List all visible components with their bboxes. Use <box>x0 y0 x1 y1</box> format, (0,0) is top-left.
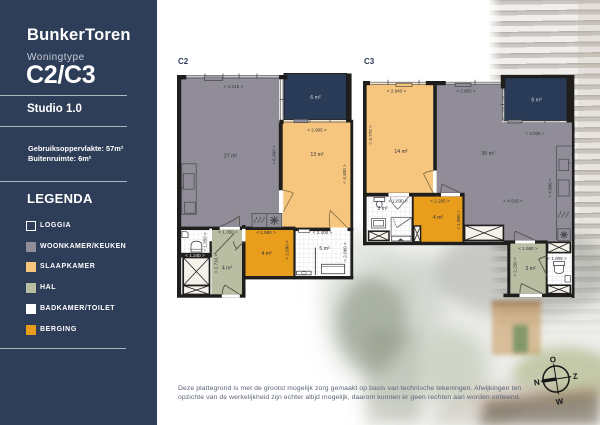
svg-text:< 1.240 >: < 1.240 > <box>185 253 205 258</box>
svg-text:6 m²: 6 m² <box>531 98 542 104</box>
svg-text:O: O <box>549 355 557 365</box>
svg-text:30 m²: 30 m² <box>481 151 495 157</box>
svg-text:< 2.965 >: < 2.965 > <box>307 128 327 133</box>
svg-text:C2: C2 <box>178 57 189 66</box>
svg-text:6 m²: 6 m² <box>310 95 321 101</box>
svg-text:27 m²: 27 m² <box>224 154 238 160</box>
svg-text:< 4.515 >: < 4.515 > <box>503 198 523 203</box>
svg-text:< 2.090 >: < 2.090 > <box>285 240 290 260</box>
svg-text:Z: Z <box>572 372 578 382</box>
svg-text:3 m²: 3 m² <box>525 266 536 272</box>
svg-text:14 m²: 14 m² <box>394 149 408 155</box>
svg-text:4 m²: 4 m² <box>261 251 272 257</box>
svg-text:< 4.400 >: < 4.400 > <box>342 164 347 184</box>
svg-text:< 3.035 >: < 3.035 > <box>525 131 545 136</box>
svg-text:N: N <box>533 378 540 388</box>
svg-text:< 2.710 >: < 2.710 > <box>213 253 218 273</box>
svg-text:5 m²: 5 m² <box>319 246 330 252</box>
svg-text:< 2.250 >: < 2.250 > <box>513 257 518 277</box>
svg-text:W: W <box>555 397 564 407</box>
svg-text:4 m²: 4 m² <box>433 215 444 221</box>
svg-text:< 6.460 >: < 6.460 > <box>272 145 277 165</box>
svg-text:4 m²: 4 m² <box>222 266 233 272</box>
svg-text:< 1.005 >: < 1.005 > <box>547 256 567 261</box>
svg-text:< 4.770 >: < 4.770 > <box>368 125 373 145</box>
svg-text:< 2.805 >: < 2.805 > <box>456 88 476 93</box>
svg-text:< 1.800 >: < 1.800 > <box>456 210 461 230</box>
svg-text:C3: C3 <box>364 57 375 66</box>
svg-text:< 1.990 >: < 1.990 > <box>256 230 276 235</box>
svg-text:< 1.830 >: < 1.830 > <box>388 198 408 203</box>
svg-text:< 2.205 >: < 2.205 > <box>430 198 450 203</box>
svg-text:< 2.400 >: < 2.400 > <box>313 230 333 235</box>
svg-text:3 m²: 3 m² <box>377 206 388 212</box>
svg-text:< 1.350 >: < 1.350 > <box>202 232 207 252</box>
svg-text:< 1.580 >: < 1.580 > <box>518 246 538 251</box>
svg-text:< 4.215 >: < 4.215 > <box>224 84 244 89</box>
svg-text:< 1.350 >: < 1.350 > <box>218 230 238 235</box>
svg-text:< 2.060 >: < 2.060 > <box>343 242 348 262</box>
svg-text:13 m²: 13 m² <box>310 152 324 158</box>
svg-text:< 4.860 >: < 4.860 > <box>548 178 553 198</box>
svg-text:< 2.840 >: < 2.840 > <box>387 88 407 93</box>
